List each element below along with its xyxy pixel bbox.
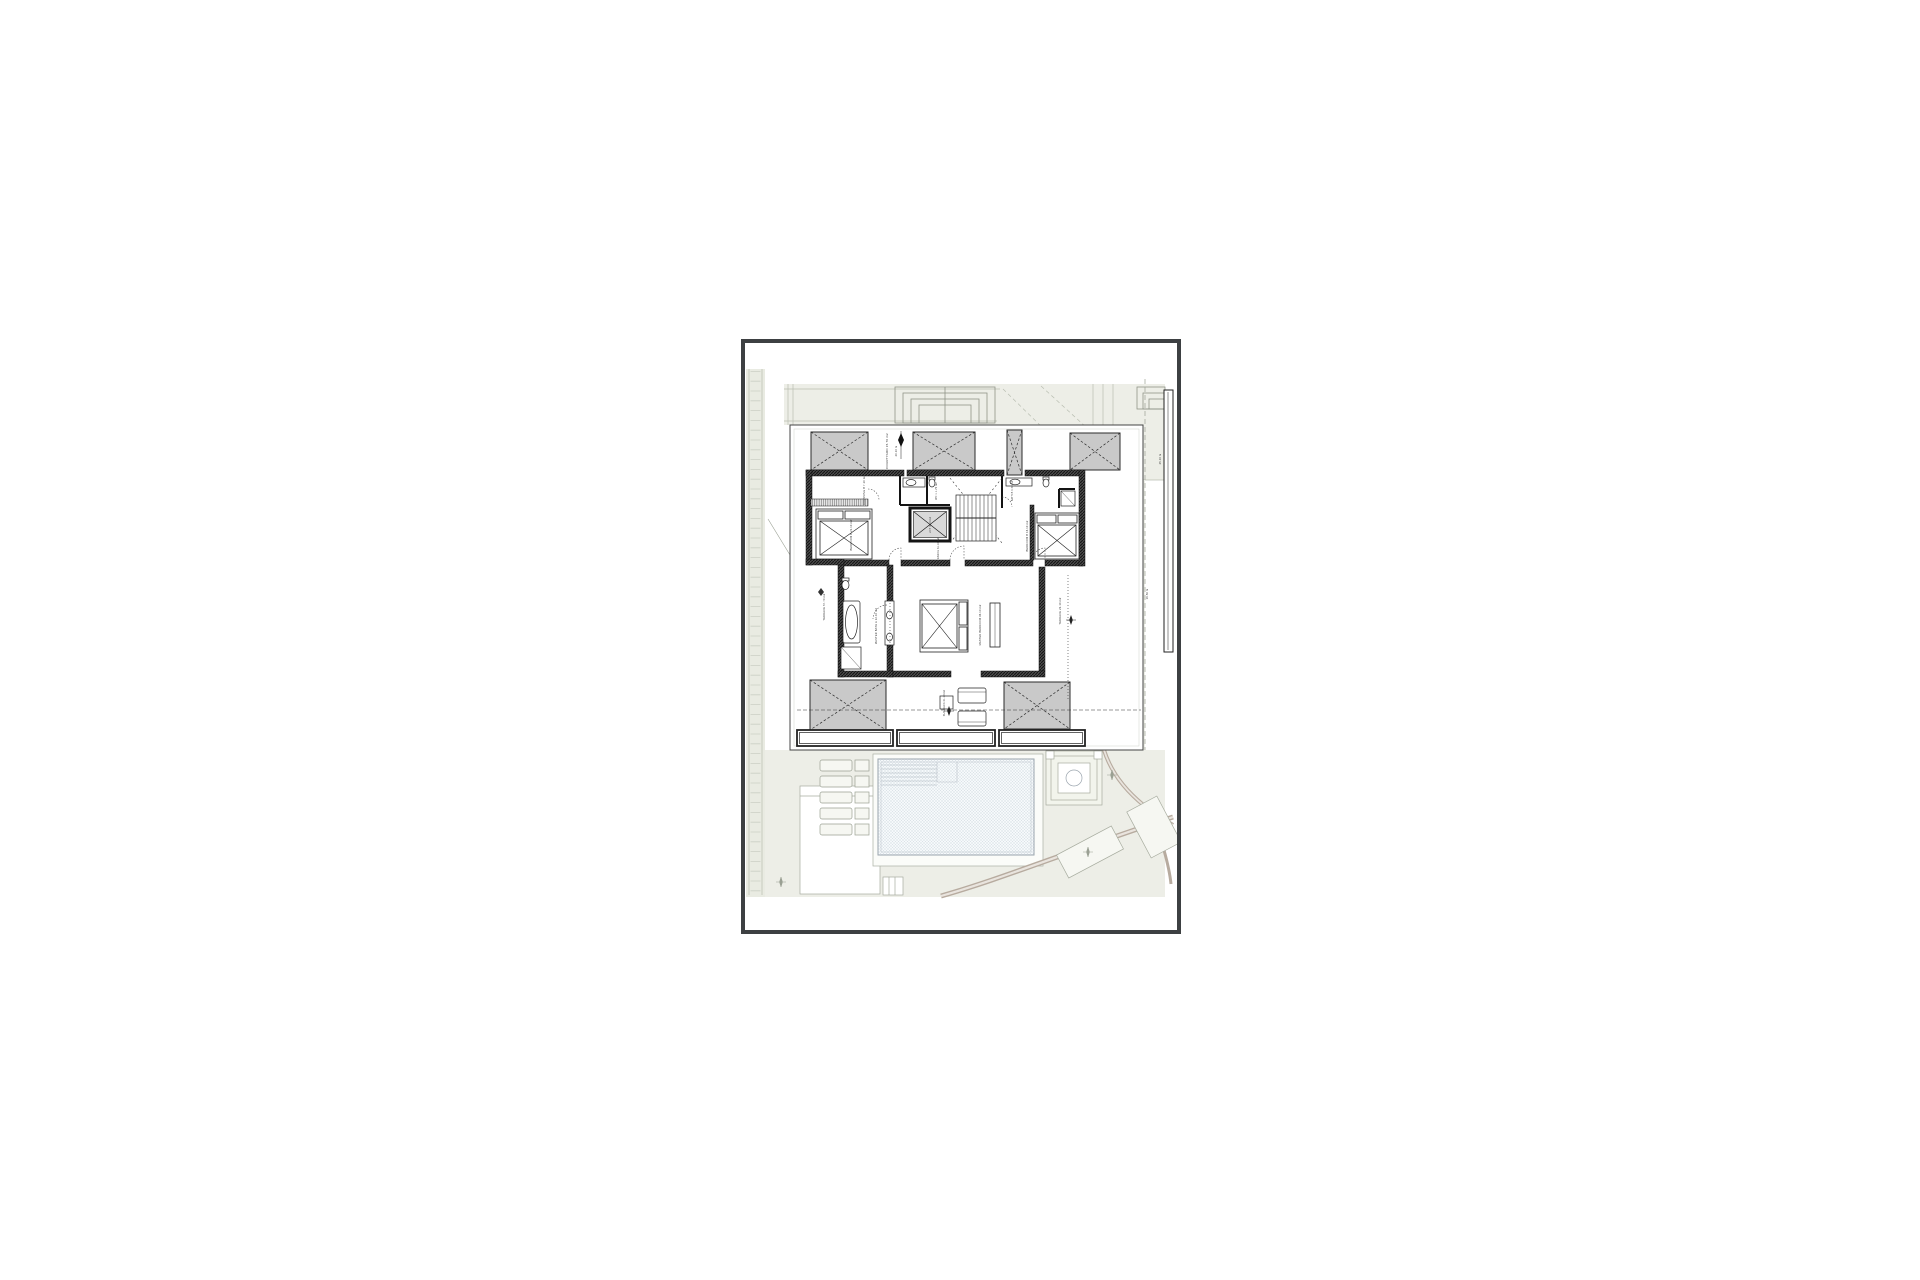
drawing-sheet: COURTYARD 15.70 m2 20.10 m DRESSING B 7.…	[741, 339, 1181, 934]
label-dressing: DRESSING B 7.10 m2	[862, 475, 866, 505]
label-master-bedroom: MASTER BEDROOM 36.10 m2	[978, 604, 982, 645]
label-terrace-left: TERRACE 57.70 m2	[822, 593, 826, 620]
site-boundary-wall	[1164, 390, 1173, 652]
label-bedroom-b: BEDROOM B 21.10 m2	[849, 519, 853, 550]
console-table	[990, 603, 1000, 647]
site-spa	[1046, 751, 1102, 805]
bed-upper-right	[1035, 513, 1079, 559]
label-wc-1: WC 1 1.70 m2	[935, 482, 938, 500]
site-loungers	[820, 760, 869, 835]
terrace-hatch-left	[810, 680, 886, 730]
label-terrace-right: TERRACE 23.10 m2	[1058, 597, 1062, 624]
roof-panel	[913, 432, 975, 470]
bath-top-center	[903, 477, 935, 487]
roof-panel	[1070, 433, 1120, 470]
label-dim-top: 20.10 m	[894, 446, 898, 457]
site-pool	[873, 754, 1043, 866]
terrace-hatch-right	[1004, 682, 1070, 729]
planter-row	[797, 730, 1085, 746]
label-hall: ENTRANCE 31.10 m2	[937, 537, 940, 565]
floor-plan-drawing: COURTYARD 15.70 m2 20.10 m DRESSING B 7.…	[741, 339, 1181, 934]
bed-upper-left	[816, 509, 872, 559]
label-master-bath: MASTER BATH A 12.10 m2	[874, 607, 878, 644]
label-bedroom-c: BEDROOM B 16.10 m2	[1025, 520, 1029, 551]
label-dim-right: 19.50 m	[1145, 589, 1149, 600]
label-courtyard: COURTYARD 15.70 m2	[885, 433, 889, 469]
label-sun-deck: SUN DECK 21.10 m2	[943, 689, 946, 716]
label-bath-b: BATH B 4.70 m2	[1011, 480, 1014, 501]
closet-band	[811, 499, 868, 506]
label-lift: LIFT 3.10 m2	[929, 516, 932, 533]
roof-panel	[1007, 430, 1022, 475]
master-bed	[920, 600, 968, 652]
roof-panel	[811, 432, 868, 470]
page-canvas: COURTYARD 15.70 m2 20.10 m DRESSING B 7.…	[0, 0, 1920, 1280]
label-dim-top-right: 25.10 m	[1158, 454, 1162, 465]
